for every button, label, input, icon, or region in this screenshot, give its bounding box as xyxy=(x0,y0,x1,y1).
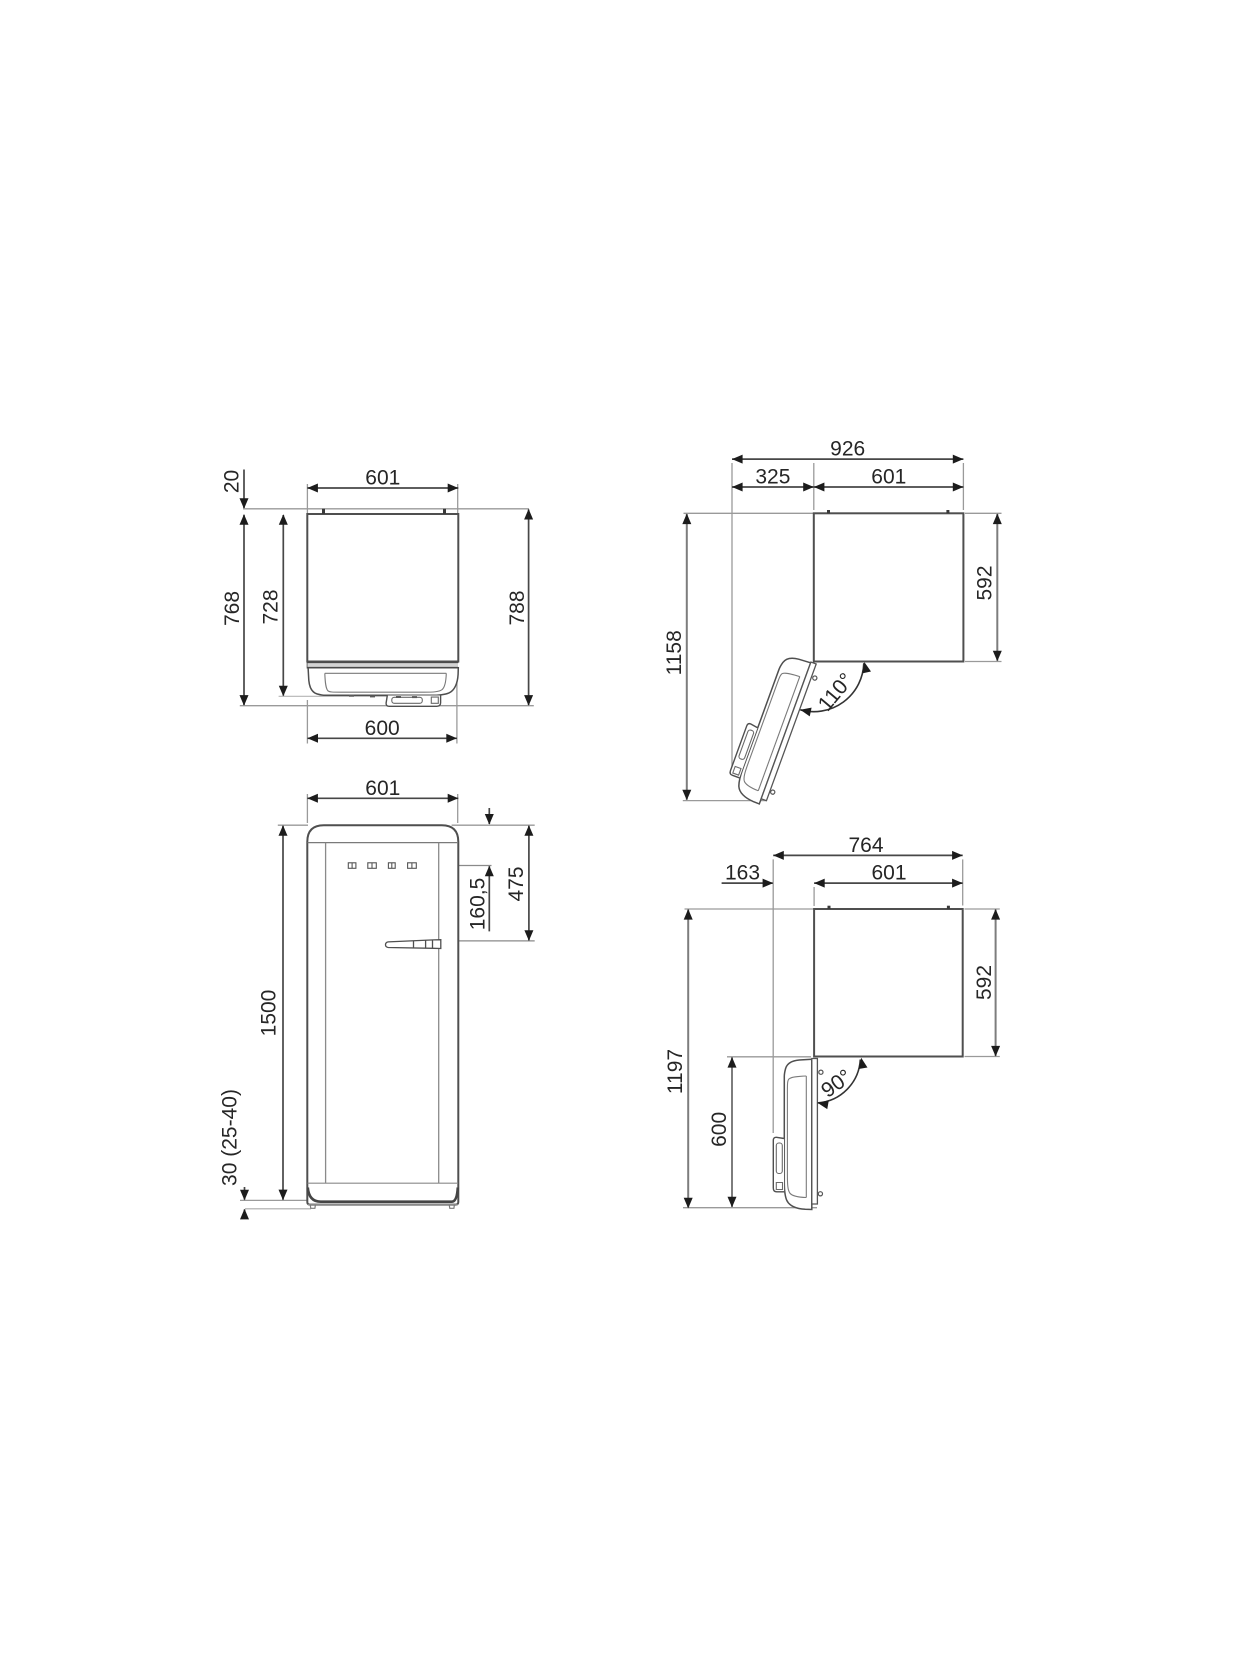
svg-text:110°: 110° xyxy=(814,669,859,716)
svg-text:160,5: 160,5 xyxy=(466,878,489,931)
svg-text:30 (25-40): 30 (25-40) xyxy=(219,1089,242,1186)
svg-text:20: 20 xyxy=(221,470,244,493)
svg-text:325: 325 xyxy=(755,466,790,489)
svg-text:601: 601 xyxy=(365,777,400,800)
svg-text:764: 764 xyxy=(848,834,883,857)
svg-text:926: 926 xyxy=(830,438,865,461)
svg-text:163: 163 xyxy=(725,862,760,885)
svg-text:592: 592 xyxy=(974,565,997,600)
svg-text:592: 592 xyxy=(973,965,996,1000)
svg-text:600: 600 xyxy=(365,717,400,740)
svg-text:768: 768 xyxy=(221,591,244,626)
svg-text:1158: 1158 xyxy=(663,630,686,675)
svg-text:475: 475 xyxy=(505,866,528,901)
svg-text:788: 788 xyxy=(506,590,529,625)
svg-text:601: 601 xyxy=(871,862,906,885)
svg-text:1197: 1197 xyxy=(664,1049,687,1094)
svg-text:1500: 1500 xyxy=(258,990,281,1037)
svg-text:600: 600 xyxy=(708,1112,731,1147)
svg-text:728: 728 xyxy=(260,589,283,624)
svg-text:601: 601 xyxy=(365,467,400,490)
svg-text:601: 601 xyxy=(871,466,906,489)
